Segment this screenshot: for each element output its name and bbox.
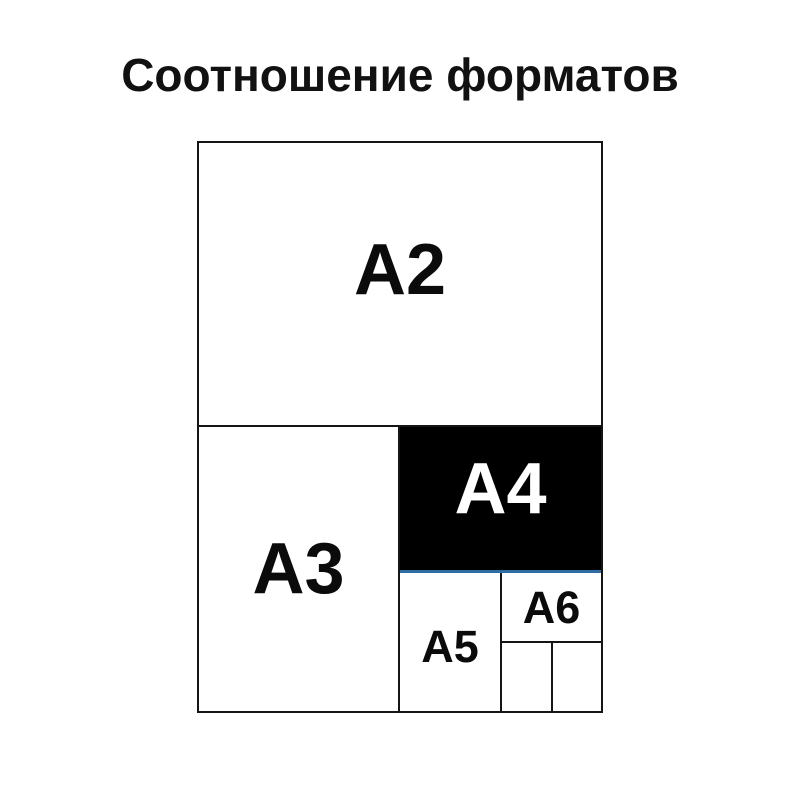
paper-format-diagram: A2 A3 A4 A5 A6 xyxy=(197,141,603,713)
format-a4-rect: A4 xyxy=(400,427,601,570)
page: Соотношение форматов A2 A3 A4 A5 A6 xyxy=(0,0,800,800)
format-a3-label: A3 xyxy=(252,533,344,605)
format-a6-label: A6 xyxy=(523,585,581,630)
format-a4-label: A4 xyxy=(454,453,546,525)
a7-cell-right xyxy=(553,643,601,711)
format-a5-rect: A5 xyxy=(400,573,502,711)
a7-cell-left xyxy=(502,643,553,711)
format-a2-rect: A2 xyxy=(199,143,601,427)
page-title: Соотношение форматов xyxy=(0,48,800,102)
format-a6-rect: A6 xyxy=(502,573,601,643)
format-a3-rect: A3 xyxy=(199,427,400,711)
format-a2-label: A2 xyxy=(354,234,446,306)
format-a5-label: A5 xyxy=(421,624,479,669)
